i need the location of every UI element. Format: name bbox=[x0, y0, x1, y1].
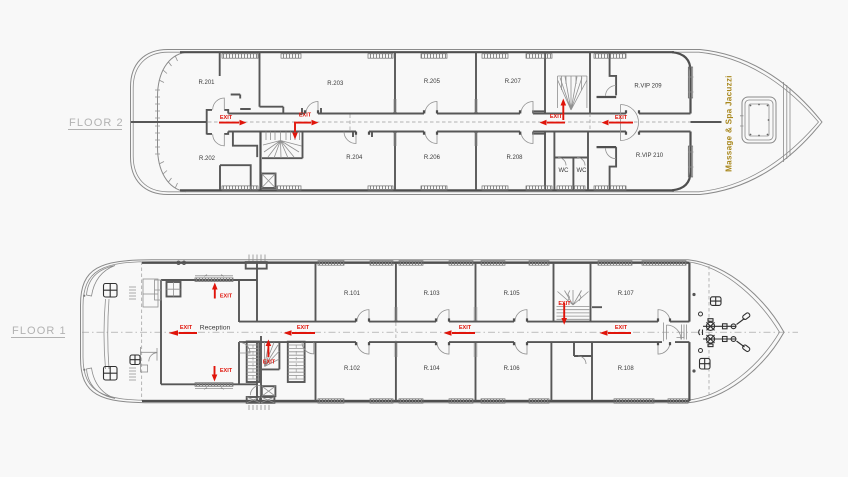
svg-text:R.105: R.105 bbox=[504, 291, 521, 297]
svg-text:R.205: R.205 bbox=[424, 79, 441, 85]
svg-text:R.207: R.207 bbox=[505, 79, 522, 85]
svg-text:R.VIP 209: R.VIP 209 bbox=[634, 84, 662, 90]
svg-text:R.101: R.101 bbox=[344, 291, 361, 297]
svg-text:R.203: R.203 bbox=[327, 81, 344, 87]
svg-text:R.201: R.201 bbox=[198, 80, 215, 86]
svg-text:FLOOR 2: FLOOR 2 bbox=[69, 117, 124, 129]
svg-text:R.206: R.206 bbox=[424, 155, 441, 161]
svg-text:R.107: R.107 bbox=[618, 291, 635, 297]
svg-text:EXIT: EXIT bbox=[550, 114, 563, 120]
svg-text:WC: WC bbox=[577, 168, 588, 174]
svg-text:EXIT: EXIT bbox=[180, 325, 193, 331]
svg-text:EXIT: EXIT bbox=[459, 325, 472, 331]
svg-text:EXIT: EXIT bbox=[220, 368, 233, 374]
svg-text:R.104: R.104 bbox=[424, 366, 441, 372]
svg-text:R.VIP 210: R.VIP 210 bbox=[636, 153, 664, 159]
svg-text:R.108: R.108 bbox=[618, 366, 635, 372]
svg-text:R.106: R.106 bbox=[504, 366, 521, 372]
svg-text:R.202: R.202 bbox=[199, 156, 216, 162]
svg-text:EXIT: EXIT bbox=[220, 294, 233, 300]
svg-text:EXIT: EXIT bbox=[297, 325, 310, 331]
svg-text:FLOOR 1: FLOOR 1 bbox=[12, 325, 67, 337]
svg-text:R.204: R.204 bbox=[346, 155, 363, 161]
svg-text:EXIT: EXIT bbox=[615, 325, 628, 331]
svg-text:EXIT: EXIT bbox=[220, 115, 233, 121]
svg-text:R.103: R.103 bbox=[424, 291, 441, 297]
svg-text:EXIT: EXIT bbox=[263, 360, 276, 366]
svg-text:WC: WC bbox=[559, 168, 570, 174]
svg-text:R.102: R.102 bbox=[344, 366, 361, 372]
svg-text:Reception: Reception bbox=[200, 324, 231, 331]
svg-text:EXIT: EXIT bbox=[615, 115, 628, 121]
svg-text:Massage & Spa Jacuzzi: Massage & Spa Jacuzzi bbox=[725, 75, 734, 172]
svg-text:R.208: R.208 bbox=[506, 155, 523, 161]
